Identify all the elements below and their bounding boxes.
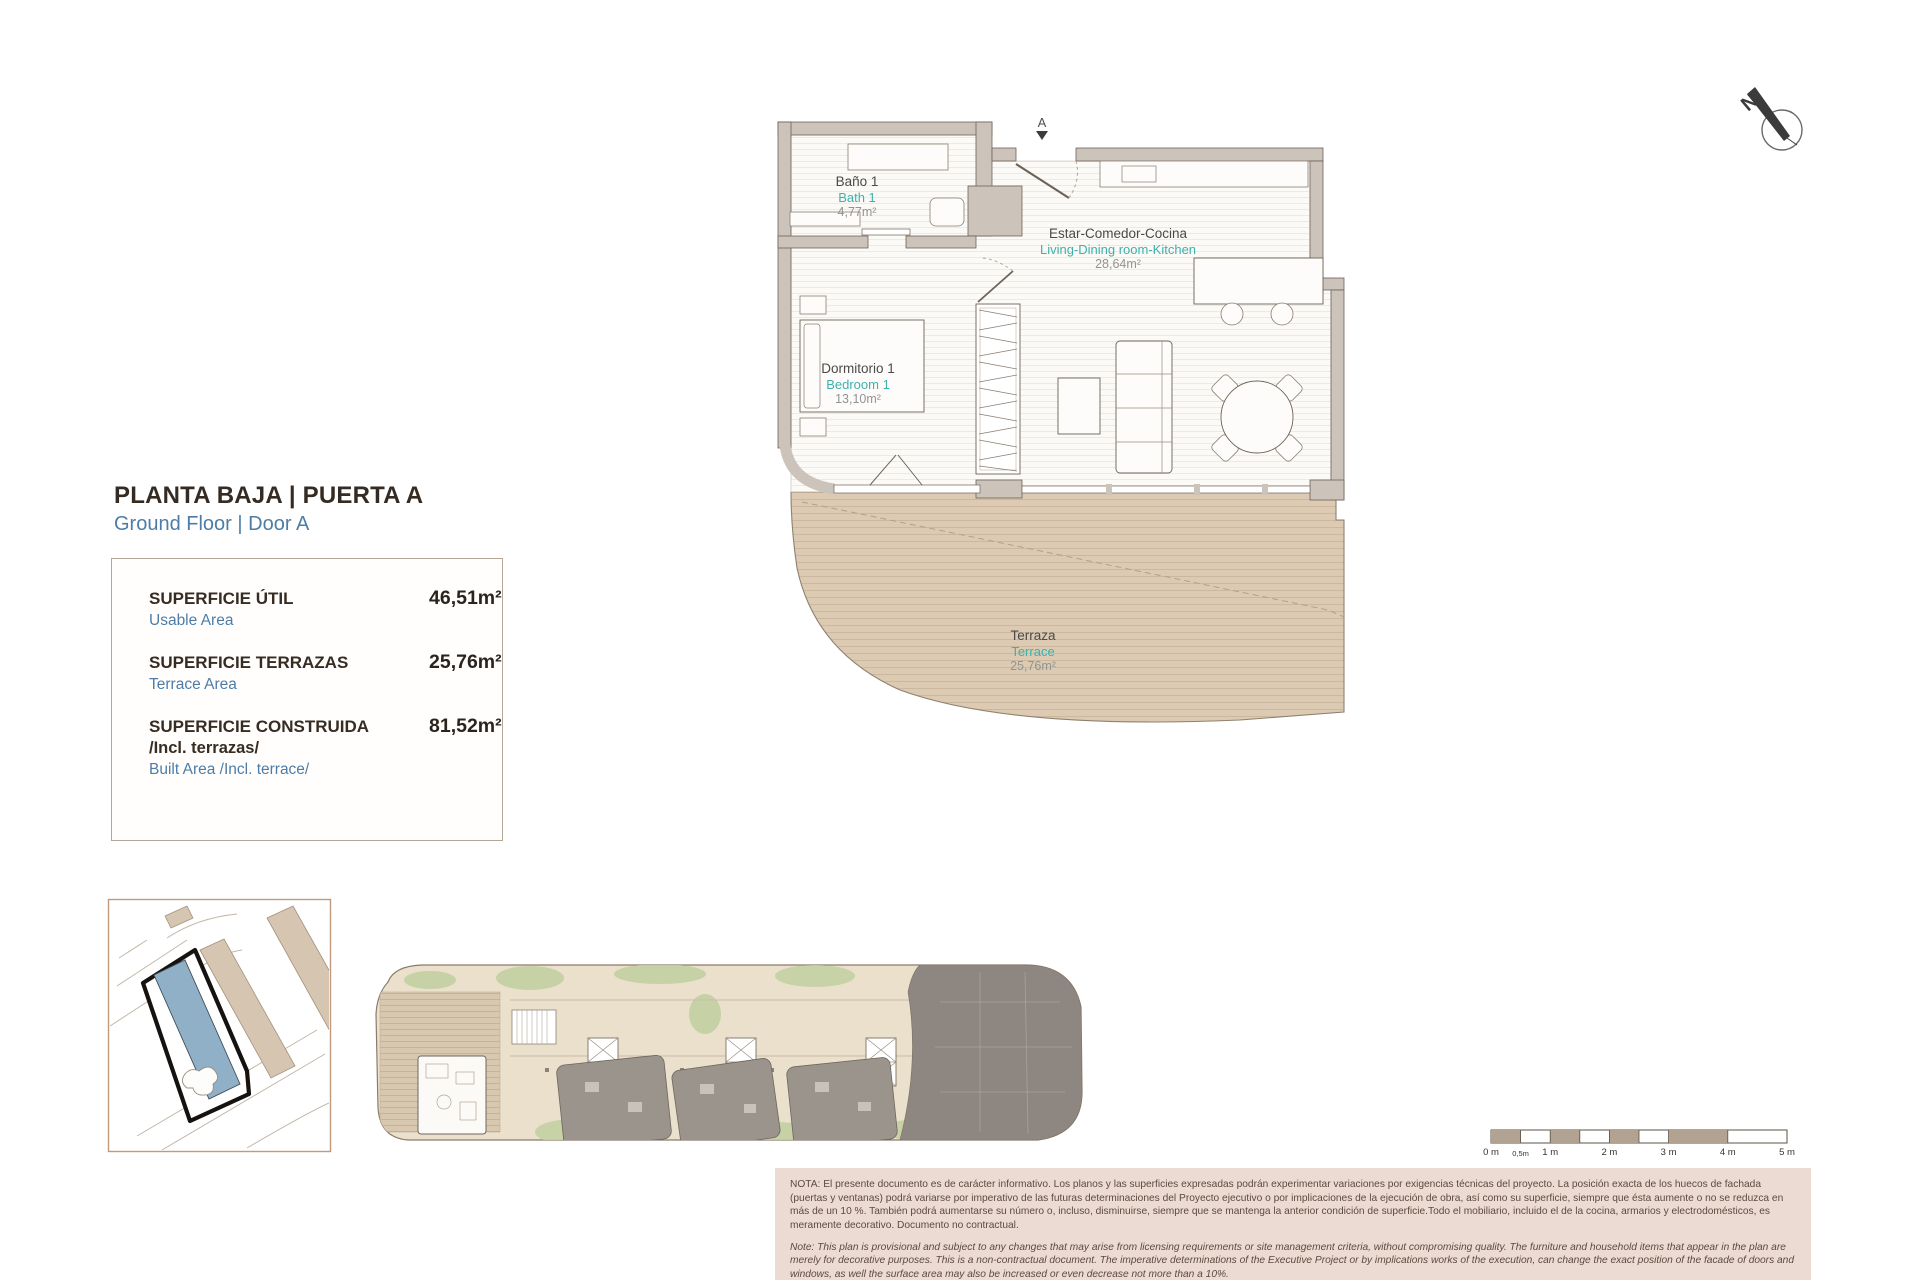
- scale-label: 0 m: [1483, 1147, 1499, 1158]
- entrance-arrow-icon: [1036, 131, 1048, 140]
- entrance-label: A: [1036, 116, 1048, 129]
- row-label-en: Terrace Area: [149, 676, 484, 694]
- bath-area: 4,77m²: [836, 205, 879, 220]
- keyplan-highlight-unit: [418, 1056, 486, 1134]
- room-label-living: Estar-Comedor-Cocina Living-Dining room-…: [1040, 226, 1196, 271]
- table-row: SUPERFICIE TERRAZAS Terrace Area 25,76m²: [149, 653, 484, 694]
- scale-label: 3 m: [1661, 1147, 1677, 1158]
- row-value: 46,51m²: [429, 587, 502, 610]
- scale-label: 5 m: [1779, 1147, 1795, 1158]
- room-label-terrace: Terraza Terrace 25,76m²: [1010, 628, 1056, 673]
- scale-label: 1 m: [1542, 1147, 1558, 1158]
- terrace-name-en: Terrace: [1010, 644, 1056, 659]
- title-block: PLANTA BAJA | PUERTA A Ground Floor | Do…: [114, 482, 423, 536]
- room-label-bath: Baño 1 Bath 1 4,77m²: [836, 174, 879, 219]
- coffee-table: [1058, 378, 1100, 434]
- bedroom-name-es: Dormitorio 1: [821, 361, 895, 377]
- north-compass: N: [1738, 78, 1818, 170]
- scale-label: 2 m: [1601, 1147, 1617, 1158]
- scale-label: 4 m: [1720, 1147, 1736, 1158]
- keyplan-units: [556, 1055, 898, 1151]
- table-row: SUPERFICIE ÚTIL Usable Area 46,51m²: [149, 589, 484, 630]
- living-area: 28,64m²: [1040, 257, 1196, 272]
- bedroom-area: 13,10m²: [821, 392, 895, 407]
- floor-plan: Baño 1 Bath 1 4,77m² Estar-Comedor-Cocin…: [770, 108, 1348, 753]
- entrance-marker: A: [1036, 116, 1048, 140]
- keyplan-gray-wing: [900, 965, 1082, 1140]
- area-table: SUPERFICIE ÚTIL Usable Area 46,51m² SUPE…: [111, 558, 503, 841]
- keyplan-stairs: [512, 1010, 556, 1044]
- room-label-bedroom: Dormitorio 1 Bedroom 1 13,10m²: [821, 361, 895, 406]
- page-title: PLANTA BAJA | PUERTA A: [114, 482, 423, 510]
- row-label-en: Built Area /Incl. terrace/: [149, 761, 484, 779]
- bedroom-name-en: Bedroom 1: [821, 377, 895, 392]
- dining-table: [1210, 373, 1304, 463]
- row-value: 81,52m²: [429, 715, 502, 738]
- compass-needle-icon: [1747, 87, 1790, 141]
- scale-label: 0,5m: [1512, 1149, 1529, 1158]
- terrace-name-es: Terraza: [1010, 628, 1056, 644]
- bath-name-en: Bath 1: [836, 190, 879, 205]
- living-name-en: Living-Dining room-Kitchen: [1040, 242, 1196, 257]
- note-spanish: NOTA: El presente documento es de caráct…: [790, 1178, 1796, 1233]
- scale-bar: 0 m 0,5m 1 m 2 m 3 m 4 m 5 m: [1487, 1127, 1807, 1167]
- row-label-en: Usable Area: [149, 612, 484, 630]
- legal-note-panel: NOTA: El presente documento es de caráct…: [775, 1168, 1811, 1280]
- plan-sheet: Baño 1 Bath 1 4,77m² Estar-Comedor-Cocin…: [0, 0, 1920, 1280]
- row-value: 25,76m²: [429, 651, 502, 674]
- terrace-deck: [791, 492, 1344, 722]
- site-location-map: [107, 898, 332, 1153]
- living-name-es: Estar-Comedor-Cocina: [1040, 226, 1196, 242]
- building-key-plan: [360, 952, 1095, 1157]
- closet-shaft: [976, 304, 1020, 474]
- sofa: [1116, 341, 1172, 473]
- row-label-es-extra: /Incl. terrazas/: [149, 739, 484, 758]
- terrace-area: 25,76m²: [1010, 659, 1056, 674]
- bath-sliding-door: [862, 229, 910, 235]
- page-subtitle: Ground Floor | Door A: [114, 513, 423, 536]
- table-row: SUPERFICIE CONSTRUIDA /Incl. terrazas/ B…: [149, 717, 484, 779]
- note-english: Note: This plan is provisional and subje…: [790, 1241, 1796, 1280]
- bath-name-es: Baño 1: [836, 174, 879, 190]
